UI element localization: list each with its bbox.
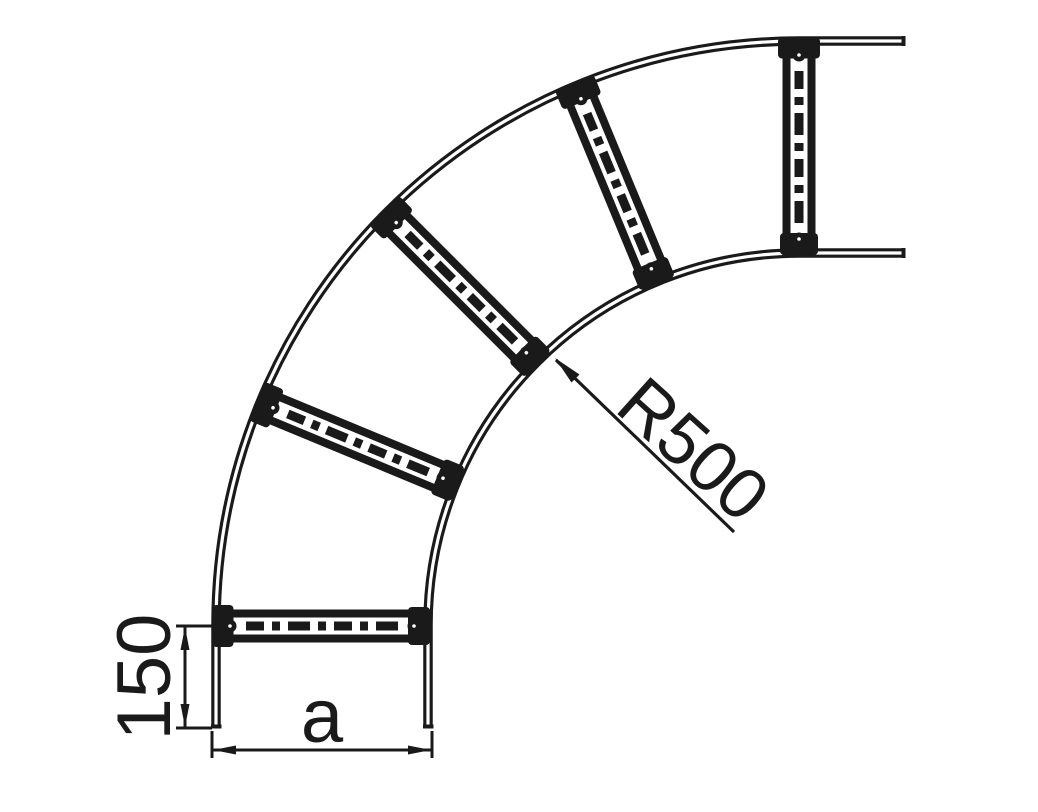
width-dimension: a: [212, 674, 432, 759]
rung-45deg: [369, 195, 553, 379]
dimA-arrowhead-right-icon: [408, 746, 431, 755]
rung-top-end: [778, 38, 820, 257]
rung-67deg: [555, 75, 677, 293]
radius-dimension: R500: [555, 358, 784, 537]
dimA-arrowhead-left-icon: [213, 746, 236, 755]
rung-bottom: [213, 605, 432, 647]
tangent-length-label: 150: [102, 614, 187, 741]
technical-drawing-canvas: R500 150 a: [0, 0, 1038, 812]
tangent-length-dimension: 150: [102, 614, 212, 741]
radius-label: R500: [602, 362, 783, 537]
rung-22deg: [249, 382, 467, 504]
width-label: a: [301, 674, 344, 759]
